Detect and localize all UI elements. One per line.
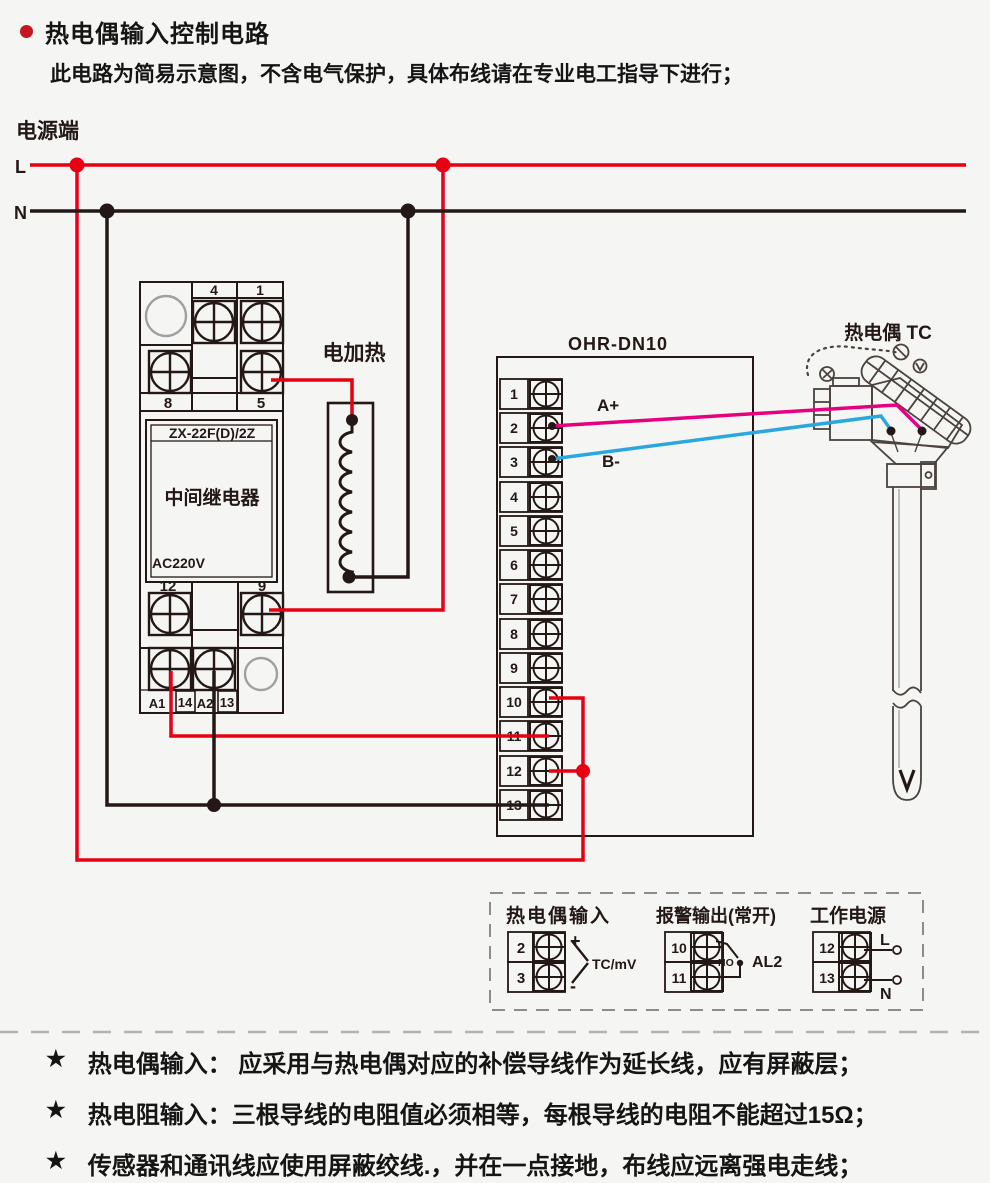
note-row: ★ 热电偶输入： 应采用与热电偶对应的补偿导线作为延长线，应有屏蔽层；: [46, 1044, 966, 1079]
controller-screws: [530, 380, 562, 819]
legend-supply-t13: 13: [819, 970, 835, 986]
legend-supply-t12: 12: [819, 940, 835, 956]
ohr-terminal-9: 9: [510, 660, 518, 676]
relay-model: ZX-22F(D)/2Z: [169, 425, 256, 441]
thermocouple-label: 热电偶 TC: [844, 321, 932, 344]
legend-alarm-name: AL2: [752, 954, 782, 971]
ohr-terminal-3: 3: [510, 454, 518, 470]
legend-supply-n: N: [880, 986, 892, 1003]
legend-alarm-t10: 10: [671, 940, 687, 956]
ohr-terminal-7: 7: [510, 591, 518, 607]
relay-terminal-12: 12: [160, 578, 177, 595]
relay-terminal-9: 9: [258, 578, 266, 595]
heater-coil: [340, 421, 352, 577]
star-icon: ★: [46, 1044, 66, 1079]
legend-tc-title: 热电偶输入: [506, 904, 611, 927]
ohr-terminal-8: 8: [510, 626, 518, 642]
star-icon: ★: [46, 1146, 66, 1181]
legend-tc-plus: +: [570, 931, 581, 951]
thermocouple: 热电偶 TC: [807, 321, 975, 800]
relay-terminal-14: 14: [178, 695, 193, 710]
wire-a-label: A+: [597, 396, 619, 415]
relay-terminal-a2: A2: [197, 696, 214, 711]
wire-b-label: B-: [602, 452, 620, 471]
relay-terminal-a1: A1: [149, 696, 166, 711]
legend-supply-title: 工作电源: [810, 904, 886, 927]
line-n-label: N: [14, 203, 27, 223]
ohr-terminal-1: 1: [510, 386, 518, 402]
ohr-terminal-10: 10: [506, 694, 522, 710]
ohr-terminal-4: 4: [510, 489, 518, 505]
legend-alarm-title: 报警输出(常开): [656, 905, 776, 926]
legend-supply: 工作电源 12 13 L N: [810, 904, 901, 1003]
note-row: ★ 传感器和通讯线应使用屏蔽绞线.，并在一点接地，布线应远离强电走线；: [46, 1146, 966, 1181]
star-icon: ★: [46, 1095, 66, 1130]
relay-terminal-5: 5: [257, 395, 265, 412]
probe-tip-mark: [900, 770, 914, 789]
line-l-label: L: [15, 157, 26, 177]
note-text: 热电偶输入： 应采用与热电偶对应的补偿导线作为延长线，应有屏蔽层；: [88, 1044, 863, 1079]
relay-voltage: AC220V: [152, 555, 206, 571]
controller-terminal-numbers: 1 2 3 4 5 6 7 8 9 10 11 12 13: [506, 386, 522, 813]
wiring-diagram-page: 热电偶输入控制电路 此电路为简易示意图，不含电气保护，具体布线请在专业电工指导下…: [0, 0, 990, 1183]
ohr-terminal-6: 6: [510, 557, 518, 573]
relay-terminal-8: 8: [164, 395, 172, 412]
note-row: ★ 热电阻输入：三根导线的电阻值必须相等，每根导线的电阻不能超过15Ω；: [46, 1095, 966, 1130]
footnotes: ★ 热电偶输入： 应采用与热电偶对应的补偿导线作为延长线，应有屏蔽层； ★ 热电…: [46, 1044, 966, 1183]
relay-terminal-13: 13: [220, 695, 234, 710]
tc-neck: [872, 442, 948, 464]
power-terminal-label: 电源端: [16, 120, 79, 143]
relay-terminal-1: 1: [256, 282, 264, 298]
heater-label: 电加热: [323, 341, 386, 365]
legend-alarm: 报警输出(常开) 10 11 NO AL2: [656, 905, 782, 992]
ohr-terminal-2: 2: [510, 420, 518, 436]
wire-heater-to-n: [349, 211, 408, 577]
legend-tc-t3: 3: [517, 970, 525, 987]
legend-alarm-t11: 11: [672, 970, 687, 986]
legend-tc-minus: -: [570, 976, 576, 996]
wire-l-to-relay9: [269, 165, 443, 610]
controller-model: OHR-DN10: [568, 334, 668, 354]
ohr-terminal-5: 5: [510, 523, 518, 539]
power-labels: 电源端 L N: [14, 120, 79, 223]
controller: OHR-DN10: [497, 334, 753, 836]
ohr-terminal-12: 12: [506, 763, 522, 779]
tc-probe: [893, 487, 921, 800]
circuit-diagram: 电源端 L N: [0, 0, 990, 1183]
relay-name: 中间继电器: [164, 486, 260, 509]
note-text: 热电阻输入：三根导线的电阻值必须相等，每根导线的电阻不能超过15Ω；: [88, 1095, 878, 1130]
legend-tc-input: 热电偶输入 2 3 + - TC/mV: [506, 904, 637, 996]
legend-supply-l: L: [880, 932, 890, 949]
relay-terminal-4: 4: [210, 282, 218, 298]
legend-tc-t2: 2: [517, 940, 525, 957]
legend-tc-signal: TC/mV: [592, 956, 637, 972]
legend-alarm-no: NO: [718, 957, 734, 969]
note-text: 传感器和通讯线应使用屏蔽绞线.，并在一点接地，布线应远离强电走线；: [88, 1146, 863, 1181]
relay-labels: 4 1 8 5 ZX-22F(D)/2Z 中间继电器 AC220V 12 9 A…: [149, 282, 266, 711]
terminal-legend: 热电偶输入 2 3 + - TC/mV 报警输出(常开): [490, 893, 923, 1010]
